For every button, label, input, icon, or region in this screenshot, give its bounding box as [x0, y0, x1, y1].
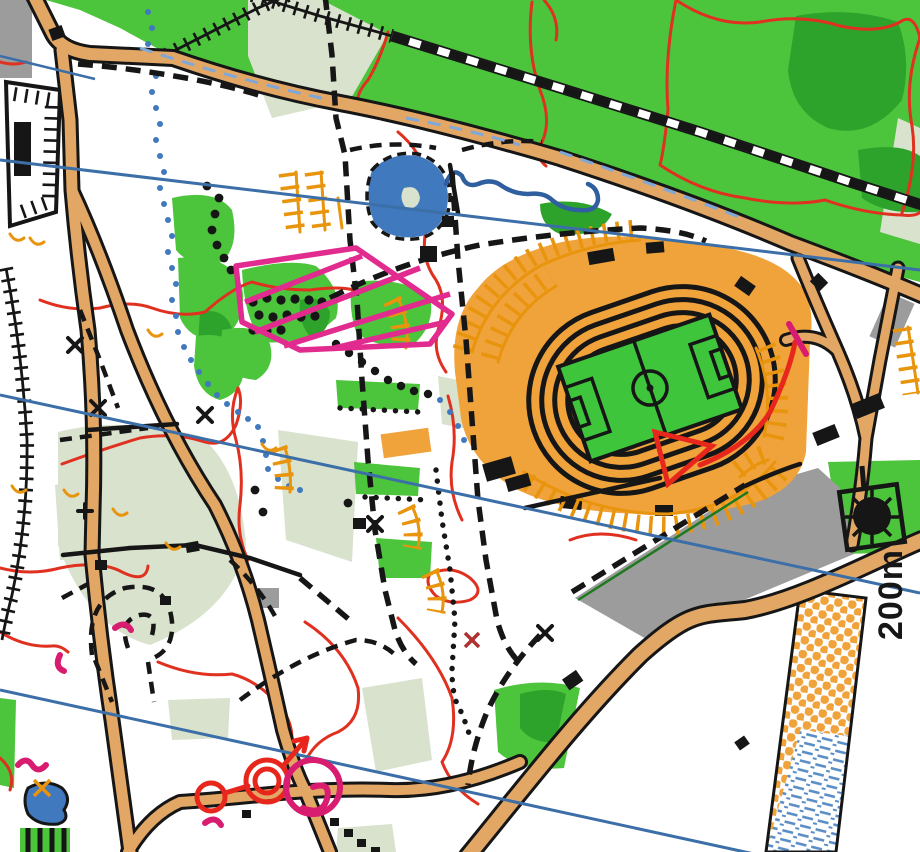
paved-nw-corner [0, 0, 32, 78]
red-cross-symbol [465, 633, 479, 647]
magenta-squiggle [18, 761, 46, 770]
green-strip-1 [336, 380, 420, 410]
magenta-tick [205, 819, 221, 825]
rough-open-centre [278, 430, 358, 562]
orienteering-map: 200m [0, 0, 920, 852]
map-canvas: 200m [0, 0, 920, 852]
orange-building [381, 428, 432, 458]
rough-open-bottom-2 [336, 824, 396, 852]
rough-open-bottom-1 [362, 678, 432, 772]
scale-label: 200m [872, 549, 910, 640]
green-blob-1 [172, 195, 234, 264]
pond-south-west [25, 783, 68, 824]
green-west-sliver [0, 698, 16, 788]
banded-strip [766, 590, 866, 852]
